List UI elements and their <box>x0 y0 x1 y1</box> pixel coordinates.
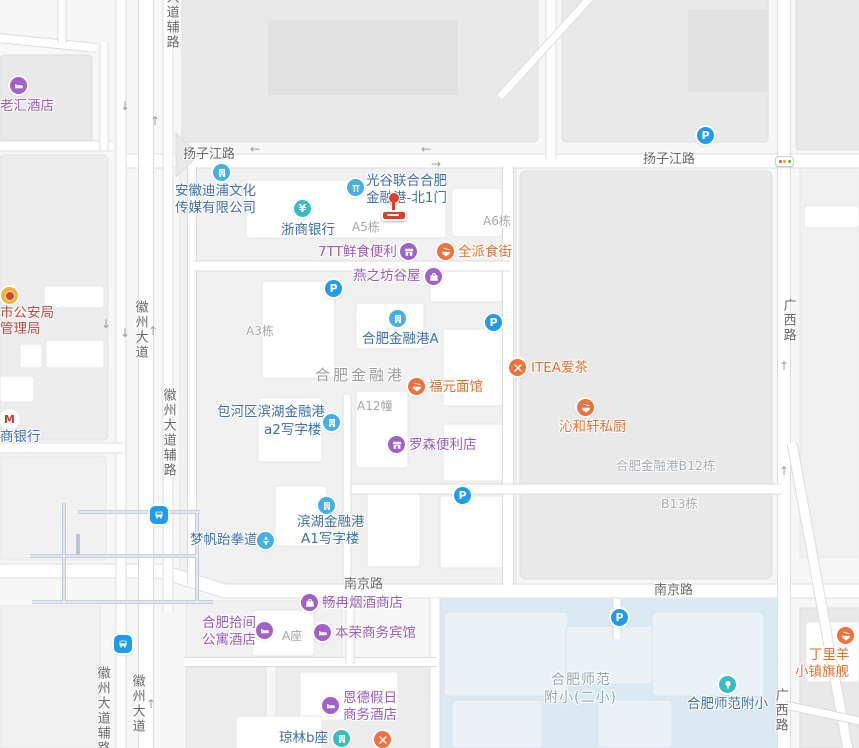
road-label-huizhou-fulu-bottom: 徽州大道辅路 <box>94 666 110 748</box>
building-label-a12: A12幢 <box>357 399 392 413</box>
road-arrow-up: ↑ <box>150 115 160 127</box>
road-arrow-left: ← <box>421 143 431 155</box>
road-label-guangxi-top: 广西路 <box>780 298 796 343</box>
bed-icon <box>13 80 25 92</box>
bowl-icon <box>411 381 423 393</box>
office-building-icon-a[interactable] <box>389 310 406 327</box>
poi-label-quanpai[interactable]: 全派食街 <box>458 244 512 260</box>
parking-icon-1[interactable]: P <box>325 280 342 297</box>
poi-label-binhu-a1-line1[interactable]: 滨湖金融港 <box>297 514 365 530</box>
qionglin-building-icon[interactable] <box>333 730 350 747</box>
road-label-guangxi-bottom: 广西路 <box>772 688 788 733</box>
road-label-dadao-fulu-top: 大道辅路 <box>163 0 179 50</box>
poi-label-itea[interactable]: ITEA爱茶 <box>531 360 588 376</box>
bowl-icon <box>580 402 592 414</box>
bus-station-icon-1[interactable] <box>150 506 168 524</box>
road-arrow-down: ↓ <box>120 100 130 112</box>
area-label-campus: 合肥金融港 <box>315 366 405 384</box>
traffic-light-icon <box>775 156 794 167</box>
poi-label-laohui-hotel[interactable]: 老汇酒店 <box>0 98 54 114</box>
area-label-school-line1: 合肥师范 <box>551 672 611 689</box>
company-icon[interactable] <box>213 164 230 181</box>
bowl-icon <box>440 246 452 258</box>
poi-label-dipu-line2[interactable]: 传媒有限公司 <box>175 200 256 216</box>
poi-label-police-line2[interactable]: 管理局 <box>0 321 41 337</box>
poi-label-fuyuan[interactable]: 福元面馆 <box>429 379 483 395</box>
building-icon <box>326 417 338 429</box>
taekwondo-icon[interactable] <box>257 532 274 549</box>
school-icon[interactable] <box>719 676 736 693</box>
building-label-b13: B13栋 <box>661 496 698 511</box>
tea-shop-icon[interactable] <box>509 359 526 376</box>
road-arrow-up: ↑ <box>779 360 789 372</box>
shop-icon <box>391 439 403 451</box>
shopping-icon[interactable] <box>425 268 442 285</box>
parking-icon-2[interactable]: P <box>485 314 502 331</box>
traffic-light-green <box>788 160 791 163</box>
fork-knife-icon <box>377 734 389 746</box>
lawson-store-icon[interactable] <box>388 436 405 453</box>
poi-label-zheshang-bank[interactable]: 浙商银行 <box>281 222 335 238</box>
parking-letter: P <box>329 283 337 294</box>
convenience-store-icon[interactable] <box>400 243 417 260</box>
poi-label-dipu-line1[interactable]: 安徽迪浦文化 <box>175 183 256 199</box>
poi-label-guanggu-line1[interactable]: 光谷联合合肥 <box>366 173 447 189</box>
private-kitchen-icon[interactable] <box>577 399 594 416</box>
parking-letter: P <box>489 317 497 328</box>
poi-label-luosen[interactable]: 罗森便利店 <box>409 437 477 453</box>
person-icon <box>260 535 272 547</box>
traffic-light-yellow <box>783 160 786 163</box>
business-hotel-icon[interactable] <box>314 624 331 641</box>
poi-label-guanggu-line2[interactable]: 金融港-北1门 <box>366 190 447 206</box>
poi-label-baohe-a2-line1[interactable]: 包河区滨湖金融港 <box>217 404 325 420</box>
area-label-school-line2: 附小(二小) <box>544 690 617 707</box>
building-icon <box>216 167 228 179</box>
road-label-nanjing-west: 南京路 <box>344 577 383 593</box>
poi-label-mengfan[interactable]: 梦帆跆拳道 <box>190 532 258 548</box>
yen-icon: ¥ <box>299 203 307 214</box>
road-arrow-left: ← <box>250 143 260 155</box>
poi-label-police-line1[interactable]: 市公安局 <box>0 305 54 321</box>
road-arrow-up: ↑ <box>779 465 789 477</box>
bag-icon <box>304 597 316 609</box>
road-label-nanjing-east: 南京路 <box>654 583 693 599</box>
gate-icon[interactable] <box>347 179 364 196</box>
building-icon <box>336 733 348 745</box>
bank-m-letter: M <box>4 414 15 425</box>
apartment-hotel-icon[interactable] <box>256 622 273 639</box>
bed-icon <box>325 700 337 712</box>
bus-icon <box>117 638 129 650</box>
tobacco-shop-icon[interactable] <box>301 594 318 611</box>
police-emblem-icon[interactable] <box>1 287 18 304</box>
poi-label-changran[interactable]: 畅冉烟酒商店 <box>322 595 403 611</box>
shop-icon <box>403 246 415 258</box>
poi-label-ende-line1[interactable]: 恩德假日 <box>343 690 397 706</box>
tree-icon <box>722 679 734 691</box>
road-label-yangzijiang-west: 扬子江路 <box>183 147 235 163</box>
road-arrow-down: ↓ <box>120 327 130 339</box>
police-emblem-center <box>5 291 15 301</box>
road-arrow-down: ↓ <box>101 318 111 330</box>
parking-icon-5[interactable]: P <box>611 609 628 626</box>
poi-label-dingliyang-line2[interactable]: 小镇旗舰 <box>795 664 849 680</box>
fork-knife-icon <box>512 362 524 374</box>
building-icon <box>392 313 404 325</box>
poi-label-qinhexuan[interactable]: 沁和轩私厨 <box>559 419 627 435</box>
poi-label-dingliyang-line1[interactable]: 丁里羊 <box>809 647 850 663</box>
sheep-restaurant-icon[interactable] <box>837 627 854 644</box>
parking-icon-4[interactable]: P <box>454 487 471 504</box>
traffic-light-red <box>779 160 782 163</box>
selected-location-marker[interactable] <box>381 192 405 220</box>
poi-label-binhu-a1-line2[interactable]: A1写字楼 <box>301 531 359 547</box>
building-icon <box>321 500 333 512</box>
bank-icon[interactable]: ¥ <box>294 200 311 217</box>
road-label-huizhou-dadao-bottom: 徽州大道 <box>129 674 145 734</box>
office-building-icon-a2[interactable] <box>323 414 340 431</box>
road-label-huizhou-dadao-mid: 徽州大道 <box>132 300 148 360</box>
restaurant-icon[interactable] <box>374 731 391 748</box>
bus-station-icon-2[interactable] <box>114 635 132 653</box>
parking-letter: P <box>615 612 623 623</box>
bed-icon <box>317 627 329 639</box>
bowl-icon <box>840 630 852 642</box>
poi-label-jinronggang-a[interactable]: 合肥金融港A <box>362 331 439 347</box>
poi-label-shijian-line1[interactable]: 合肥拾间 <box>202 615 256 631</box>
parking-icon-3[interactable]: P <box>697 127 714 144</box>
building-label-a3: A3栋 <box>246 324 274 338</box>
bus-icon <box>153 509 165 521</box>
poi-label-baohe-a2-line2[interactable]: a2写字楼 <box>264 422 321 438</box>
road-arrow-up: ↑ <box>146 698 156 710</box>
poi-label-7tt[interactable]: 7TT鲜食便利 <box>318 244 397 260</box>
road-label-huizhou-fulu-mid: 徽州大道辅路 <box>160 388 176 478</box>
road-label-yangzijiang-east: 扬子江路 <box>643 152 695 168</box>
hotel-icon[interactable] <box>10 77 27 94</box>
building-label-a-block: A座 <box>282 629 302 643</box>
road-arrow-right: → <box>431 158 441 170</box>
food-court-icon[interactable] <box>437 243 454 260</box>
gate-glyph-icon <box>350 182 362 194</box>
poi-label-bank[interactable]: 商银行 <box>0 429 41 445</box>
poi-label-shijian-line2[interactable]: 公寓酒店 <box>202 632 256 648</box>
bag-icon <box>428 271 440 283</box>
building-label-b12: 合肥金融港B12栋 <box>616 458 715 473</box>
poi-label-benrong[interactable]: 本荣商务宾馆 <box>335 625 416 641</box>
poi-label-ende-line2[interactable]: 商务酒店 <box>343 707 397 723</box>
office-building-icon-a1[interactable] <box>318 497 335 514</box>
poi-label-shifan[interactable]: 合肥师范附小 <box>687 696 768 712</box>
building-label-a5: A5栋 <box>352 220 380 234</box>
holiday-hotel-icon[interactable] <box>322 697 339 714</box>
road-arrow-up: ↑ <box>148 325 158 337</box>
poi-label-qionglin[interactable]: 琼林b座 <box>279 730 328 746</box>
parking-letter: P <box>458 490 466 501</box>
bed-icon <box>259 625 271 637</box>
parking-letter: P <box>701 130 709 141</box>
marker-slot <box>387 214 399 217</box>
map-canvas[interactable]: 扬子江路 扬子江路 南京路 南京路 大道辅路 徽州大道 徽州大道辅路 徽州大道辅… <box>0 0 859 748</box>
merchants-bank-icon[interactable]: M <box>1 411 18 428</box>
poi-label-yanzhifang[interactable]: 燕之坊谷屋 <box>353 268 421 284</box>
noodle-restaurant-icon[interactable] <box>408 378 425 395</box>
building-label-a6: A6栋 <box>483 214 511 228</box>
